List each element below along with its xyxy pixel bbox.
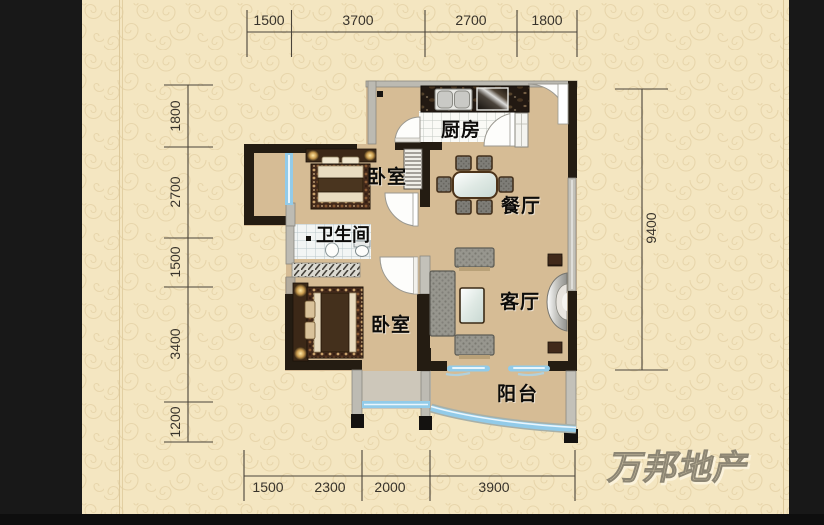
svg-text:2000: 2000 [374, 479, 405, 495]
svg-text:2300: 2300 [314, 479, 345, 495]
svg-text:3700: 3700 [342, 12, 373, 28]
svg-text:1800: 1800 [531, 12, 562, 28]
svg-text:2700: 2700 [455, 12, 486, 28]
svg-text:阳台: 阳台 [497, 382, 539, 405]
svg-text:卧室: 卧室 [371, 313, 411, 336]
svg-text:客厅: 客厅 [500, 290, 540, 313]
svg-text:餐厅: 餐厅 [501, 194, 541, 217]
svg-text:1800: 1800 [167, 100, 183, 131]
svg-text:卫生间: 卫生间 [316, 224, 370, 245]
svg-text:厨房: 厨房 [441, 118, 481, 141]
svg-text:1500: 1500 [252, 479, 283, 495]
svg-text:2700: 2700 [167, 176, 183, 207]
svg-text:1500: 1500 [167, 246, 183, 277]
svg-text:3900: 3900 [478, 479, 509, 495]
svg-text:1200: 1200 [167, 406, 183, 437]
svg-text:1500: 1500 [253, 12, 284, 28]
svg-text:卧室: 卧室 [367, 165, 407, 188]
svg-text:9400: 9400 [643, 212, 659, 243]
svg-text:3400: 3400 [167, 328, 183, 359]
svg-text:万邦地产: 万邦地产 [605, 449, 753, 487]
